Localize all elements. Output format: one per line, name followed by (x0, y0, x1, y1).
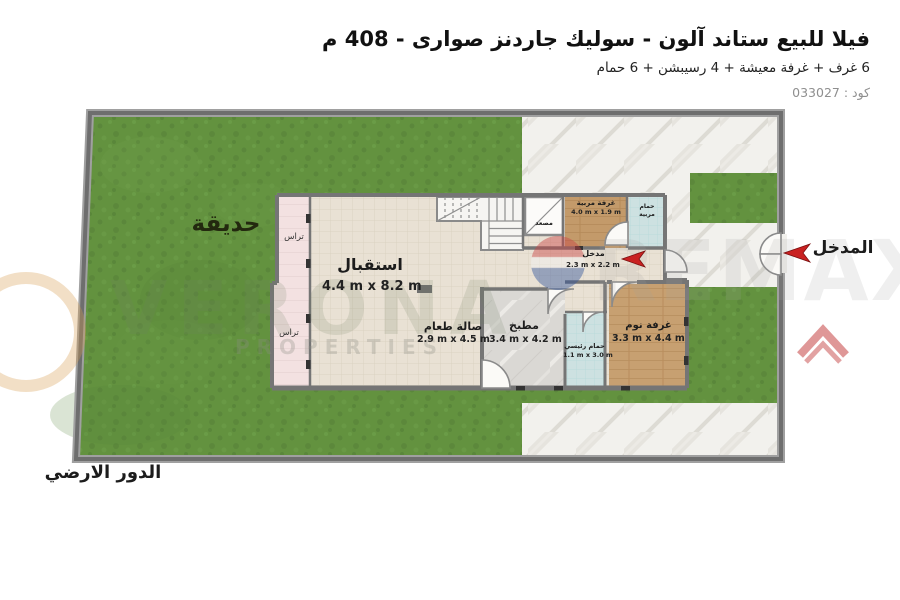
reception-dims: 4.4 m x 8.2 m (322, 280, 417, 294)
listing-code: كود : 033027 (792, 85, 870, 100)
main-entrance-label: المدخل (808, 239, 878, 258)
main-bath-label: حمام رئيسي (563, 343, 606, 350)
terrace-upper-label: تراس (277, 233, 311, 242)
kitchen-label: مطبخ (494, 320, 554, 332)
watermark-brand-right: REMAX (592, 222, 900, 320)
page-subtitle: 6 غرف + غرفة معيشة + 4 رسيبشن + 6 حمام (597, 60, 870, 76)
nanny-room-label: غرفة مربية (565, 200, 627, 208)
watermark-brand-left-sub: PROPERTIES (235, 335, 444, 359)
entry-hall-dims: 2.3 m x 2.2 m (559, 262, 627, 270)
terrace-lower-label: تراس (272, 329, 306, 338)
floorplan-page: VERONA PROPERTIES REMAX فيلا للبيع ستاند… (0, 0, 900, 600)
nanny-bath-label-1: حمام (630, 204, 664, 211)
page-title: فيلا للبيع ستاند آلون - سوليك جاردنز صوا… (322, 27, 870, 51)
entry-hall-label: مدخل (566, 250, 621, 259)
nanny-room-dims: 4.0 m x 1.9 m (565, 209, 627, 216)
dining-label: صالة طعام (417, 321, 489, 333)
kitchen-dims: 3.4 m x 4.2 m (489, 335, 559, 345)
garden-label: حديقة (186, 212, 266, 237)
dining-dims: 2.9 m x 4.5 m (417, 335, 489, 345)
reception-label: استقبال (330, 256, 410, 274)
floorplan-drawing: VERONA PROPERTIES REMAX (0, 0, 900, 600)
elevator-box (525, 197, 563, 235)
floor-label: الدور الارضي (38, 463, 168, 483)
elevator-label: مصعد (524, 220, 564, 227)
bedroom-label: غرفة نوم (621, 320, 676, 331)
nanny-bath-label-2: مربية (630, 212, 664, 219)
bedroom-dims: 3.3 m x 4.4 m (612, 334, 684, 344)
watermark-ring (0, 278, 80, 386)
lawn-strip-top (690, 173, 779, 223)
main-bath-dims: 1.1 m x 3.0 m (563, 352, 606, 359)
